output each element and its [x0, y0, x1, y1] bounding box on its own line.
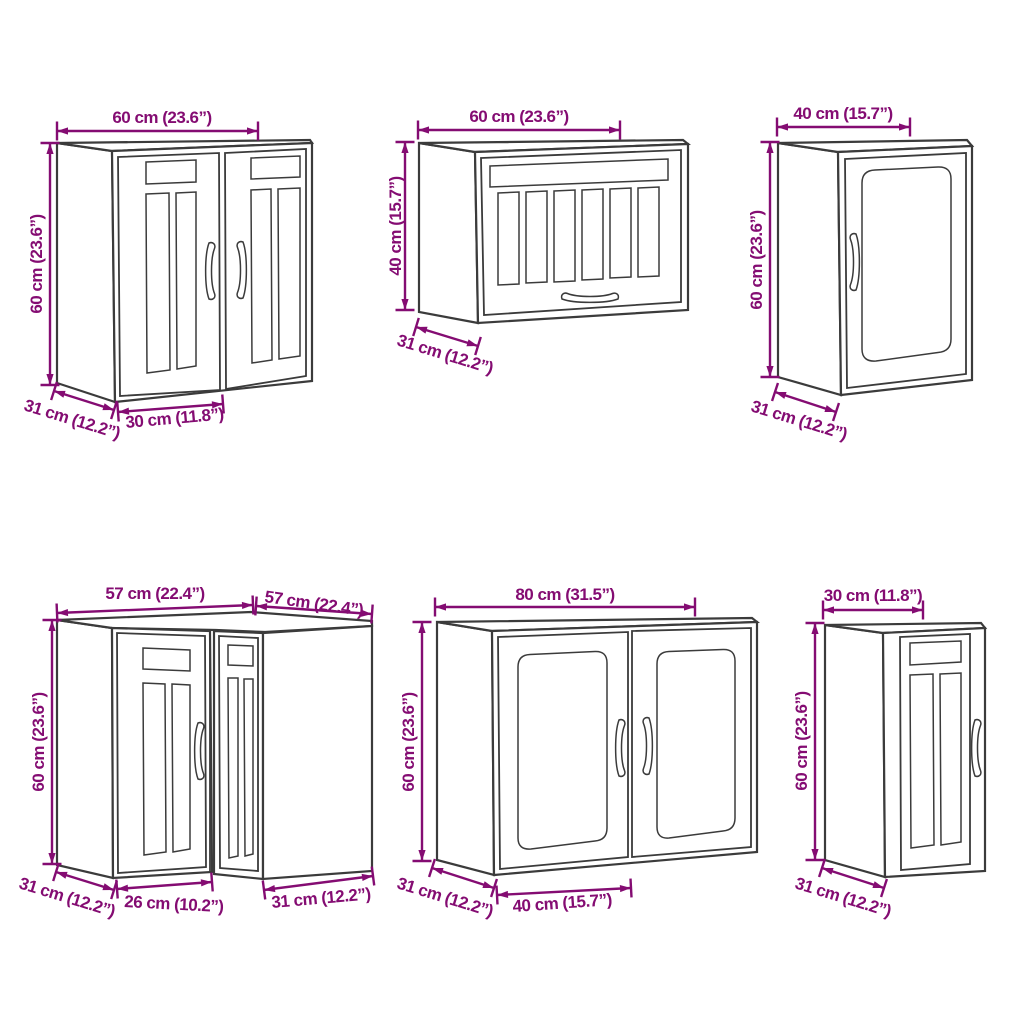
left-glass-panel [518, 651, 607, 849]
right-glass-panel [657, 649, 735, 838]
left-width-dimension-line [57, 605, 253, 613]
height-label: 40 cm (15.7”) [386, 176, 405, 275]
height-label: 60 cm (23.6”) [747, 210, 766, 309]
depth-label: 31 cm (12.2”) [17, 874, 118, 921]
right-door-panel [251, 189, 272, 363]
depth-label: 31 cm (12.2”) [395, 331, 496, 378]
glass-panel [862, 167, 951, 361]
left-door-panel [143, 683, 166, 855]
cabinet-side-panel [57, 620, 113, 878]
height-label: 60 cm (23.6”) [399, 692, 418, 791]
height-label: 60 cm (23.6”) [27, 214, 46, 313]
cabinet-glass-door-40: 40 cm (15.7”) 60 cm (23.6”) 31 cm (12.2”… [747, 104, 972, 444]
cabinet-single-door-30: 30 cm (11.8”) 60 cm (23.6”) 31 cm (12.2”… [792, 586, 985, 921]
height-label: 60 cm (23.6”) [792, 691, 811, 790]
width-label: 80 cm (31.5”) [515, 585, 614, 604]
angled-door-top-panel [228, 645, 253, 666]
left-door-panel [146, 193, 170, 373]
cabinet-side-panel [419, 143, 478, 323]
right-door-top-panel [251, 156, 300, 179]
left-door-panel [172, 684, 190, 852]
depth-label: 31 cm (12.2”) [395, 874, 496, 921]
depth-label: 31 cm (12.2”) [22, 396, 123, 443]
door-panel [940, 673, 961, 845]
width-label: 60 cm (23.6”) [469, 107, 568, 126]
cabinet-double-door-60: 60 cm (23.6”) 60 cm (23.6”) 31 cm (12.2”… [22, 108, 312, 443]
door-slat [582, 189, 603, 280]
door-width-label: 26 cm (10.2”) [124, 892, 224, 916]
height-label: 60 cm (23.6”) [29, 692, 48, 791]
width-label: 40 cm (15.7”) [793, 104, 892, 123]
cabinet-side-panel [437, 622, 494, 875]
door-slat [610, 188, 631, 278]
cabinet-right-side-panel [263, 626, 372, 879]
depth-label: 31 cm (12.2”) [793, 874, 894, 921]
door-slat [498, 192, 519, 285]
door-width-label: 30 cm (11.8”) [125, 404, 225, 432]
door-slat [554, 190, 575, 282]
right-door-panel [278, 188, 300, 359]
product-dimension-diagram: 60 cm (23.6”) 60 cm (23.6”) 31 cm (12.2”… [0, 0, 1024, 1024]
diagram-canvas: 60 cm (23.6”) 60 cm (23.6”) 31 cm (12.2”… [0, 0, 1024, 1024]
left-door-panel [176, 192, 196, 369]
left-door-top-panel [146, 160, 196, 184]
door-panel [910, 674, 934, 848]
angled-door-panel [228, 678, 238, 858]
cabinet-side-panel [825, 625, 885, 877]
door-width-dimension-line [117, 882, 212, 889]
cabinet-flip-up-60x40: 60 cm (23.6”) 40 cm (15.7”) 31 cm (12.2”… [386, 107, 688, 378]
left-width-label: 57 cm (22.4”) [105, 584, 204, 603]
cabinet-double-glass-door-80: 80 cm (31.5”) 60 cm (23.6”) 31 cm (12.2”… [395, 585, 757, 921]
width-label: 60 cm (23.6”) [112, 108, 211, 127]
left-door-top-panel [143, 648, 190, 671]
width-label: 30 cm (11.8”) [824, 586, 922, 605]
door-slat [526, 191, 547, 283]
cabinet-side-panel [778, 143, 841, 395]
door-top-panel [910, 641, 961, 665]
cabinet-side-panel [57, 143, 115, 402]
door-slat [638, 187, 659, 277]
angled-door-panel [244, 679, 253, 856]
side-width-label: 31 cm (12.2”) [271, 884, 372, 912]
depth-label: 31 cm (12.2”) [749, 397, 850, 444]
cabinet-corner-57x57: 57 cm (22.4”) 57 cm (22.4”) 60 cm (23.6”… [17, 584, 373, 921]
